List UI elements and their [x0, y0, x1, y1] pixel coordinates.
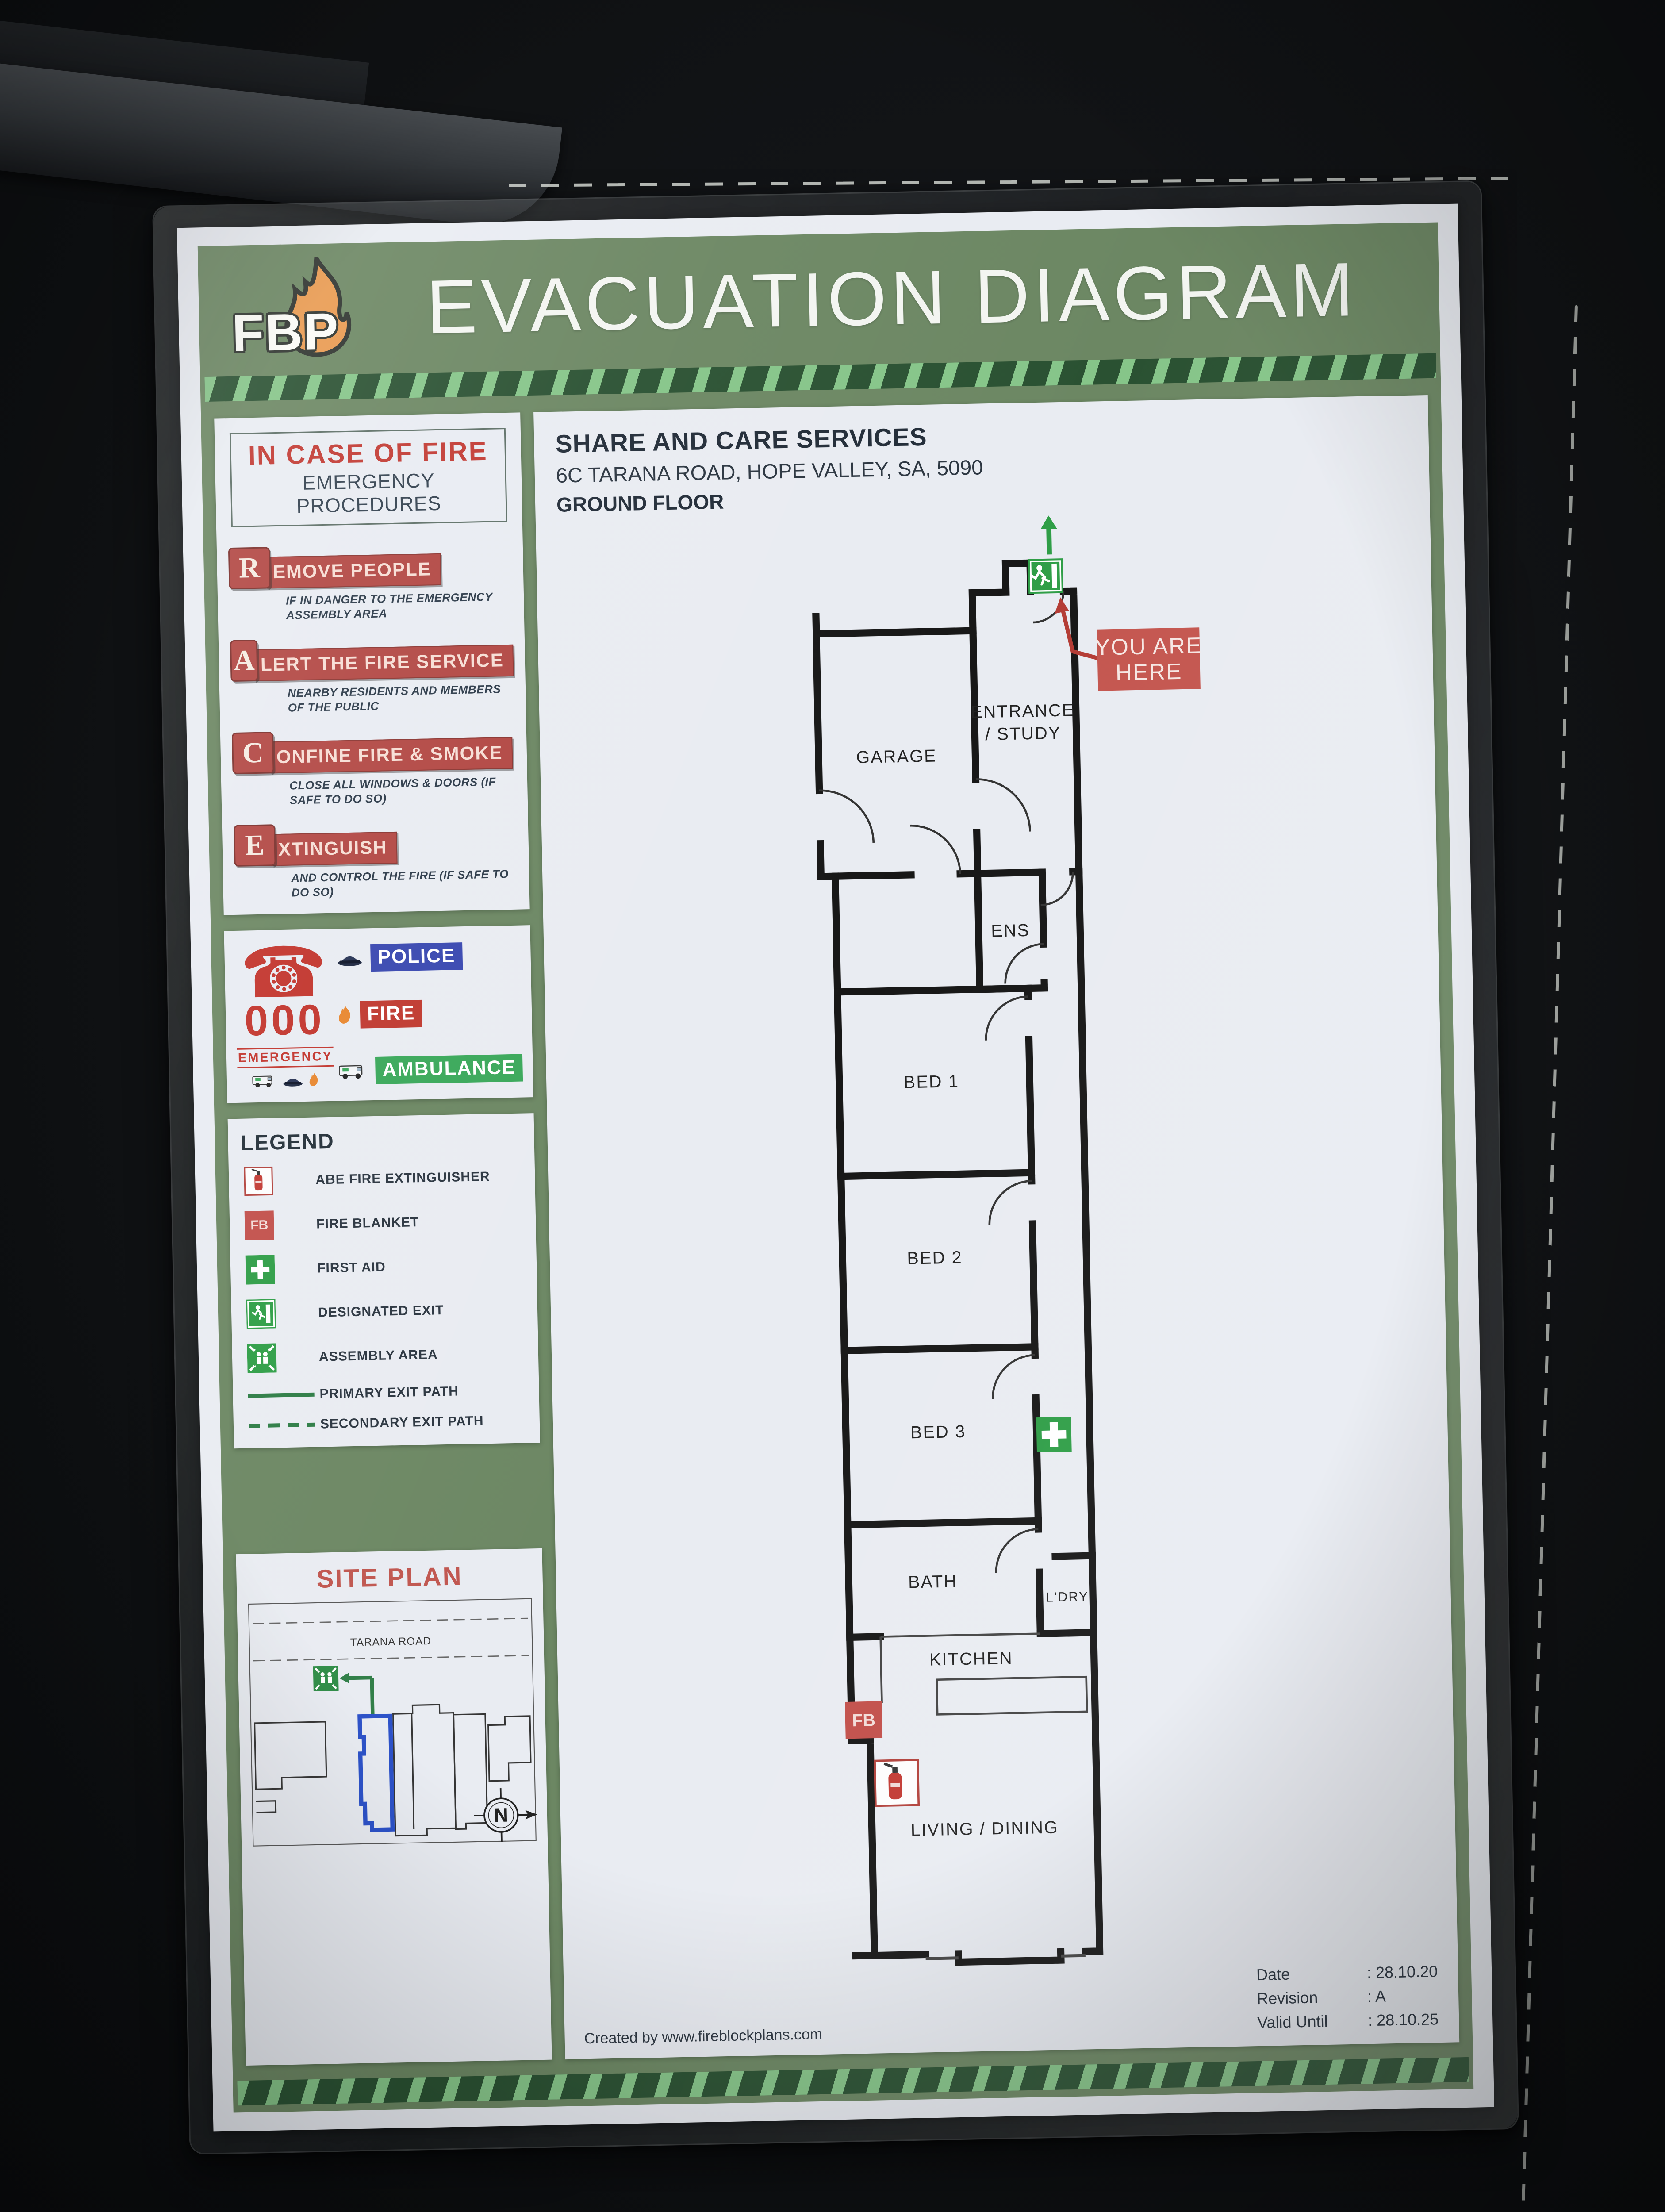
step-caption: NEARBY RESIDENTS AND MEMBERS OF THE PUBL… [288, 682, 514, 715]
designated-exit-icon [246, 1299, 276, 1329]
road-label: TARANA ROAD [350, 1635, 432, 1649]
step-caption: IF IN DANGER TO THE EMERGENCY ASSEMBLY A… [286, 589, 513, 622]
room-label-bath: BATH [908, 1571, 957, 1592]
fire-extinguisher-icon [875, 1760, 918, 1806]
step-caption: AND CONTROL THE FIRE (IF SAFE TO DO SO) [291, 867, 518, 900]
fire-chip: FIRE [360, 1000, 422, 1029]
plastic-sleeve: FBP EVACUATION DIAGRAM IN CASE OF FIRE E… [152, 180, 1519, 2155]
legend-item: ASSEMBLY AREA [243, 1339, 527, 1373]
emergency-mini-icons [238, 1071, 334, 1090]
procedures-card: IN CASE OF FIRE EMERGENCY PROCEDURES R E… [214, 412, 529, 915]
emergency-card: ☎ 000 EMERGENCY [224, 925, 533, 1103]
step-letter: A [230, 640, 258, 682]
emergency-phone-block: ☎ 000 EMERGENCY [235, 942, 334, 1090]
content-row: IN CASE OF FIRE EMERGENCY PROCEDURES R E… [201, 378, 1473, 2081]
step-letter: E [234, 824, 276, 867]
assembly-area-icon [313, 1666, 339, 1691]
svg-text:FB: FB [852, 1710, 875, 1730]
you-are-here-line1: YOU ARE [1094, 633, 1202, 660]
emergency-label: EMERGENCY [237, 1047, 334, 1068]
service-chips: POLICE FIRE [331, 939, 523, 1088]
fbp-logo: FBP [223, 253, 371, 366]
compass-rose: N [474, 1787, 538, 1843]
step-label: ONFINE FIRE & SMOKE [270, 737, 513, 774]
step-label: LERT THE FIRE SERVICE [254, 645, 514, 681]
sidebar: IN CASE OF FIRE EMERGENCY PROCEDURES R E… [214, 412, 552, 2066]
first-aid-icon [246, 1255, 275, 1285]
meta-label: Revision [1257, 1985, 1368, 2011]
procedure-step: A LERT THE FIRE SERVICE NEARBY RESIDENTS… [230, 635, 514, 716]
room-label-bed2: BED 2 [907, 1248, 963, 1268]
secondary-path-line [249, 1423, 315, 1428]
police-row: POLICE [336, 941, 521, 972]
room-label-study: / STUDY [985, 723, 1061, 744]
meta-value: : A [1367, 1984, 1386, 2008]
meta-label: Valid Until [1257, 2008, 1368, 2035]
document-meta: Date: 28.10.20 Revision: A Valid Until: … [1256, 1959, 1439, 2035]
compass-n: N [494, 1804, 508, 1826]
step-letter: C [232, 732, 274, 774]
legend-item: DESIGNATED EXIT [242, 1294, 526, 1329]
primary-path-line [248, 1393, 315, 1398]
procedure-step: R EMOVE PEOPLE IF IN DANGER TO THE EMERG… [228, 542, 513, 623]
room-label-garage: GARAGE [856, 746, 937, 767]
step-label: EMOVE PEOPLE [266, 553, 441, 589]
step-label: XTINGUISH [272, 832, 397, 866]
fire-extinguisher-icon [244, 1167, 273, 1196]
stitching-right [1520, 305, 1578, 2212]
procedures-subtitle: EMERGENCY PROCEDURES [235, 468, 503, 519]
assembly-area-icon [247, 1344, 276, 1373]
header-band: FBP EVACUATION DIAGRAM [198, 222, 1440, 377]
legend-item: PRIMARY EXIT PATH [244, 1383, 528, 1403]
room-label-bed3: BED 3 [910, 1422, 966, 1442]
telephone-icon: ☎ [235, 942, 332, 1003]
emergency-number: 000 [236, 995, 333, 1046]
police-chip: POLICE [370, 942, 463, 972]
floor-plan-drawing: YOU ARE HERE [760, 504, 1233, 1990]
assembly-path-arrowhead [339, 1673, 349, 1684]
legend-card: LEGEND [228, 1113, 540, 1448]
subject-building-outline [360, 1716, 392, 1830]
photo-scene: FBP EVACUATION DIAGRAM IN CASE OF FIRE E… [0, 0, 1665, 2212]
small-flame-icon [308, 1072, 320, 1087]
room-label-living: LIVING / DINING [910, 1817, 1059, 1839]
ambulance-chip: AMBULANCE [375, 1054, 523, 1084]
floor-plan-card: SHARE AND CARE SERVICES 6C TARANA ROAD, … [533, 395, 1459, 2059]
procedures-title-box: IN CASE OF FIRE EMERGENCY PROCEDURES [230, 428, 507, 527]
green-frame: FBP EVACUATION DIAGRAM IN CASE OF FIRE E… [198, 222, 1473, 2112]
step-letter: R [228, 547, 271, 589]
procedure-step: E XTINGUISH AND CONTROL THE FIRE (IF SAF… [234, 820, 518, 901]
procedures-title: IN CASE OF FIRE [234, 435, 501, 471]
exit-arrow-icon [1040, 515, 1057, 555]
designated-exit-icon [1028, 558, 1063, 594]
procedure-step: C ONFINE FIRE & SMOKE CLOSE ALL WINDOWS … [232, 727, 516, 808]
police-hat-icon [282, 1072, 304, 1088]
ambulance-icon [252, 1072, 278, 1089]
site-plan-title: SITE PLAN [245, 1560, 534, 1595]
legend-title: LEGEND [240, 1126, 523, 1156]
you-are-here-line2: HERE [1115, 659, 1182, 685]
evacuation-diagram-page: FBP EVACUATION DIAGRAM IN CASE OF FIRE E… [177, 204, 1494, 2132]
fbp-logo-text: FBP [231, 301, 340, 364]
ambulance-row: AMBULANCE [338, 1054, 523, 1085]
fire-blanket-icon: FB [845, 1701, 882, 1739]
small-flame-icon [337, 1004, 353, 1026]
ambulance-icon [338, 1061, 368, 1081]
room-label-bed1: BED 1 [903, 1071, 959, 1092]
room-label-ens: ENS [990, 921, 1030, 941]
meta-value: : 28.10.25 [1368, 2007, 1439, 2032]
room-label-entrance: ENTRANCE [970, 700, 1074, 722]
site-plan-drawing: TARANA ROAD [246, 1596, 543, 2057]
legend-item: FB FIRE BLANKET [241, 1206, 525, 1240]
assembly-path [345, 1678, 373, 1717]
created-by-text: Created by www.fireblockplans.com [584, 2026, 822, 2047]
meta-value: : 28.10.20 [1367, 1959, 1438, 1985]
step-caption: CLOSE ALL WINDOWS & DOORS (IF SAFE TO DO… [289, 774, 516, 807]
site-plan-card: SITE PLAN TARANA ROAD [236, 1548, 552, 2066]
legend-item: SECONDARY EXIT PATH [245, 1413, 529, 1433]
police-hat-icon [336, 948, 364, 968]
meta-label: Date [1256, 1961, 1367, 1987]
room-label-kitchen: KITCHEN [929, 1648, 1013, 1670]
room-label-ldry: L'DRY [1045, 1590, 1089, 1605]
legend-item: ABE FIRE EXTINGUISHER [240, 1162, 524, 1196]
first-aid-icon [1036, 1417, 1071, 1452]
fire-row: FIRE [337, 998, 522, 1029]
page-title: EVACUATION DIAGRAM [369, 245, 1415, 352]
legend-item: FIRST AID [242, 1250, 526, 1285]
fire-blanket-icon: FB [245, 1211, 274, 1240]
